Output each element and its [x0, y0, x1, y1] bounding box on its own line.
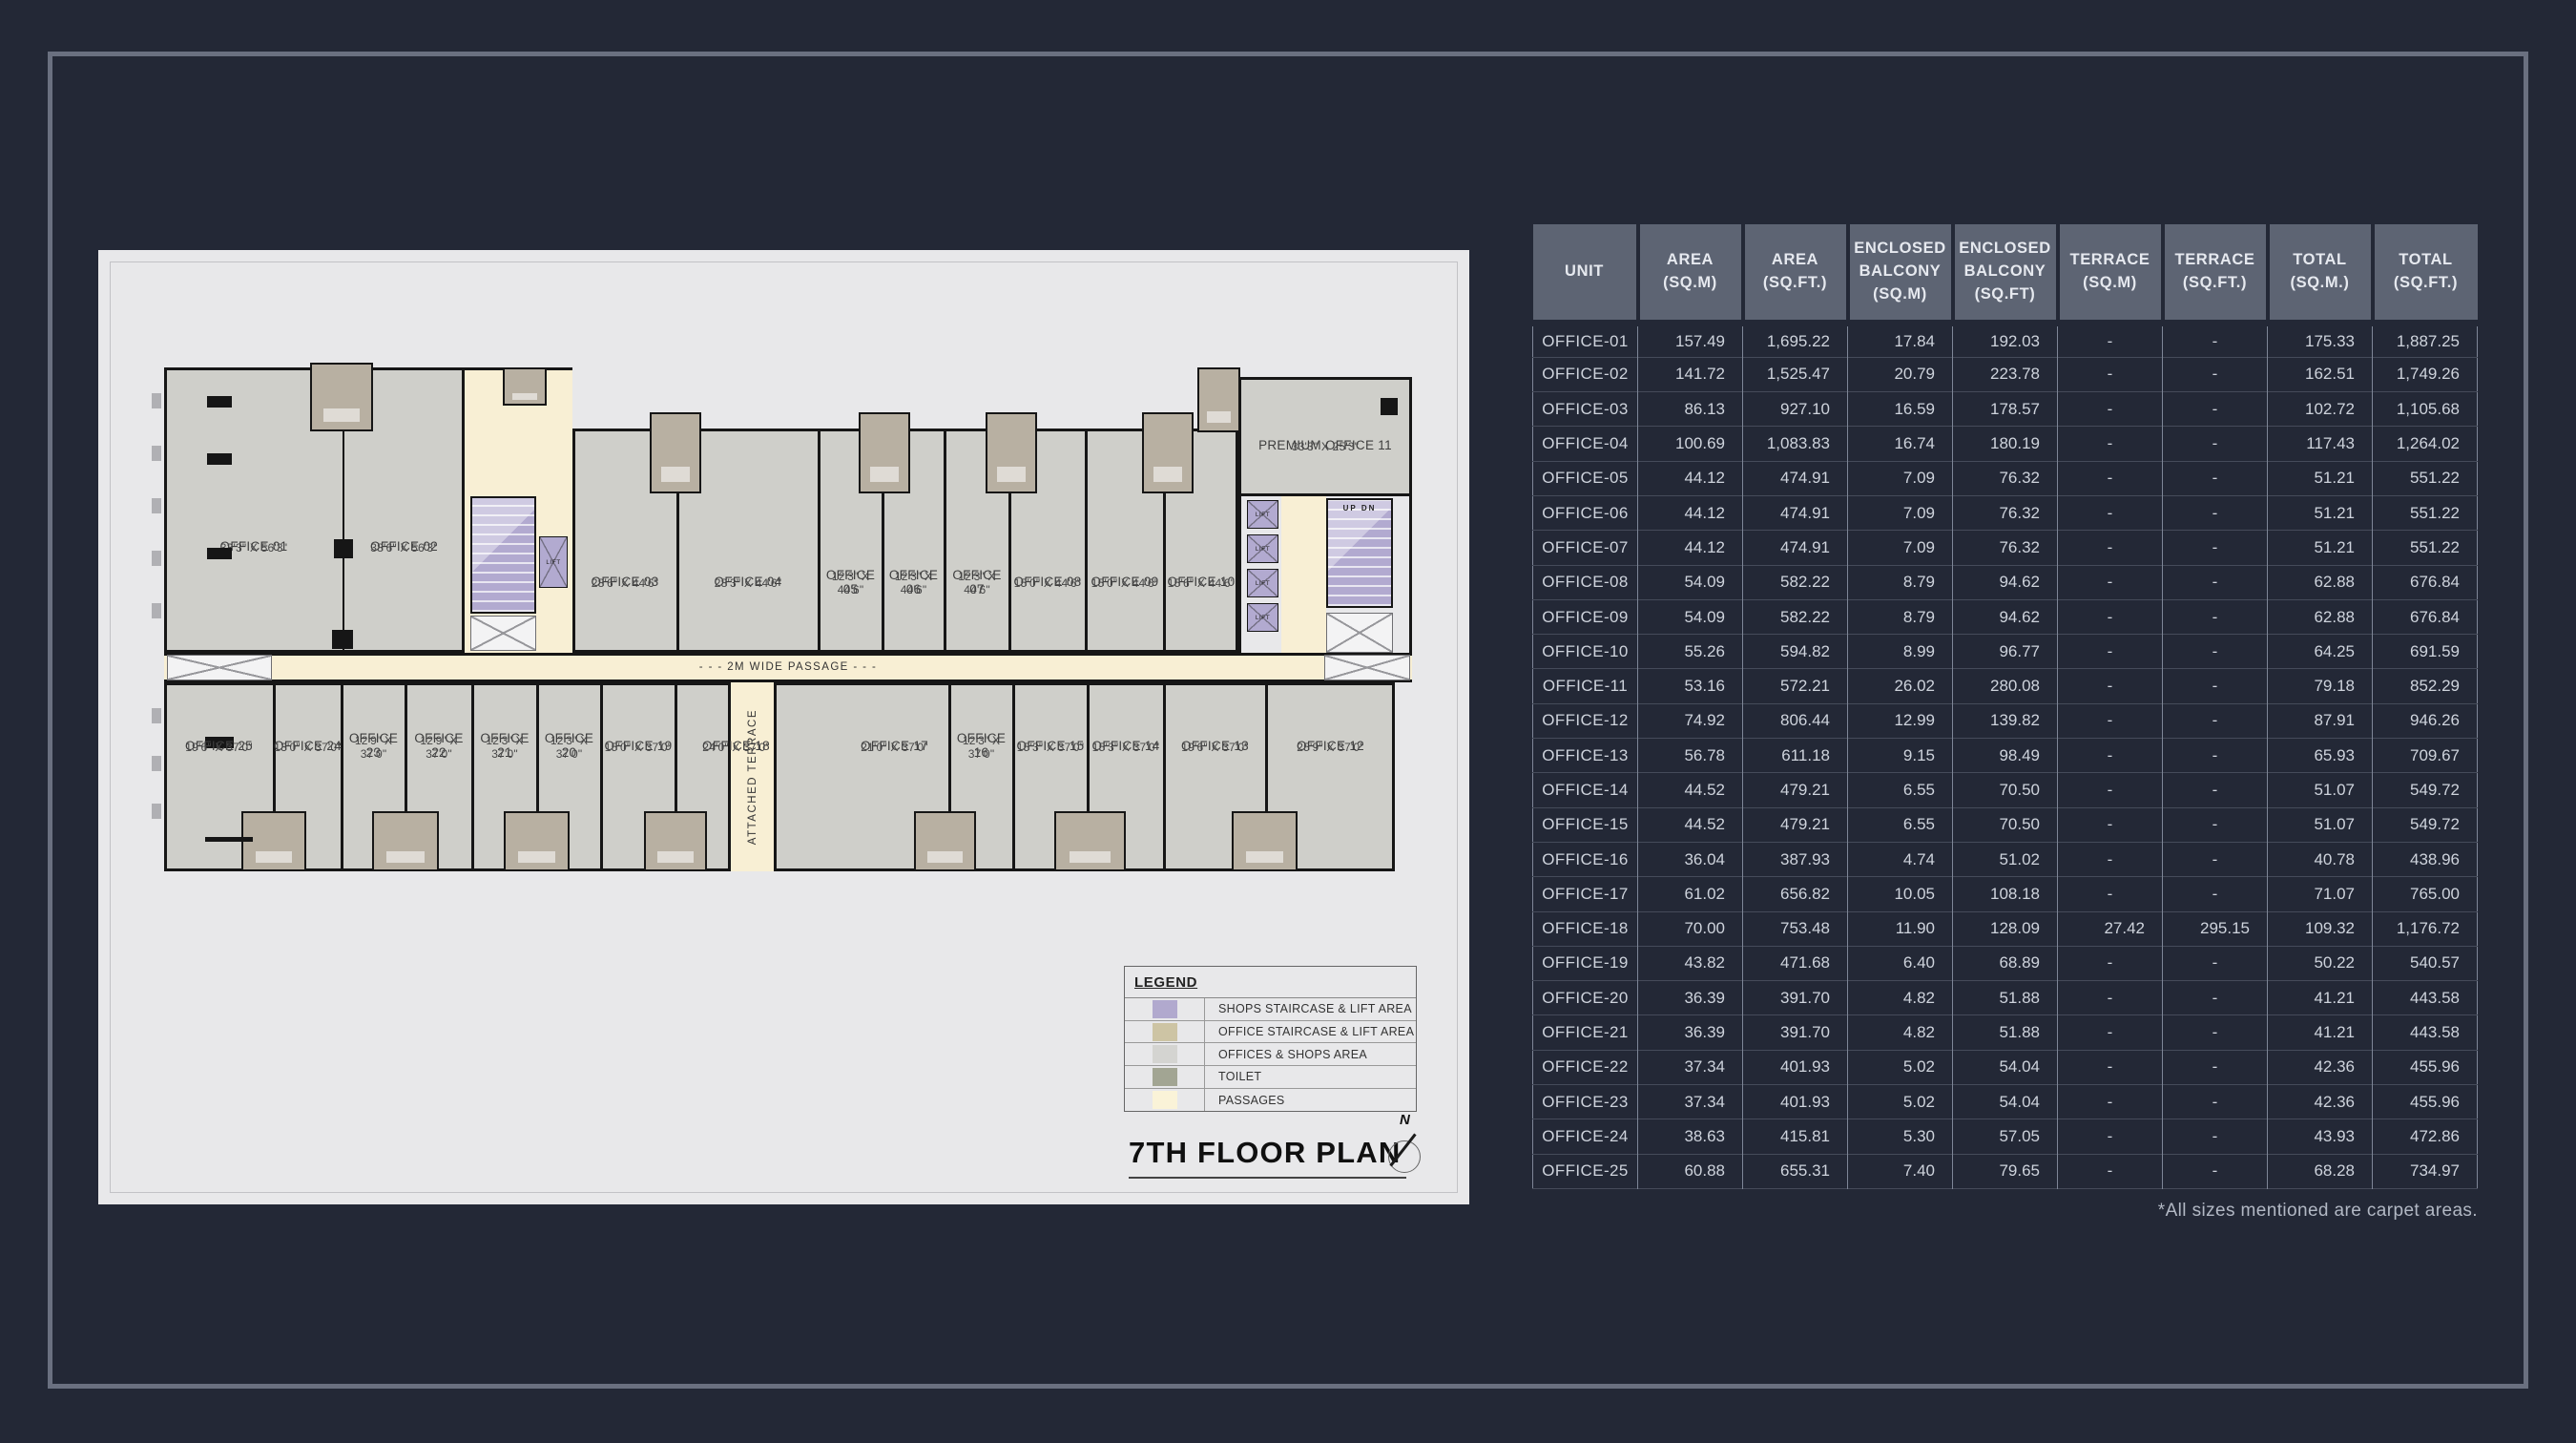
value-cell: -	[2163, 565, 2268, 599]
value-cell: 753.48	[1743, 911, 1848, 946]
table-header: UNITAREA(SQ.M)AREA(SQ.FT.)ENCLOSEDBALCON…	[1533, 224, 2478, 323]
value-cell: -	[2058, 323, 2163, 357]
office-dims: 12'3" X 37'0"	[472, 734, 537, 761]
value-cell: 16.74	[1848, 427, 1953, 461]
plan-office-18: OFFICE 1824'0" X 37'0"	[675, 682, 797, 871]
plan-balcony-tick	[152, 804, 161, 819]
office-dims: 12'3" X 44'6"	[819, 570, 883, 596]
stair-dn-label: DN	[1361, 504, 1377, 512]
value-cell: -	[2163, 531, 2268, 565]
value-cell: 11.90	[1848, 911, 1953, 946]
office-dims: 15'0" X 44'6"	[1091, 576, 1158, 590]
value-cell: -	[2058, 1015, 2163, 1050]
legend-label: PASSAGES	[1205, 1089, 1416, 1112]
value-cell: 74.92	[1638, 703, 1743, 738]
table-row: OFFICE-1636.04387.934.7451.02--40.78438.…	[1533, 842, 2478, 876]
value-cell: 117.43	[2268, 427, 2373, 461]
value-cell: 37.34	[1638, 1085, 1743, 1119]
value-cell: 443.58	[2373, 1015, 2478, 1050]
plan-office-14: OFFICE 1415'3" X 37'0"	[1088, 682, 1164, 871]
legend-swatch	[1153, 1023, 1177, 1041]
legend-swatch	[1153, 1045, 1177, 1063]
unit-cell: OFFICE-04	[1533, 427, 1638, 461]
table-row: OFFICE-1153.16572.2126.02280.08--79.1885…	[1533, 669, 2478, 703]
table-row: OFFICE-2438.63415.815.3057.05--43.93472.…	[1533, 1119, 2478, 1154]
plan-office-21: OFFICE 2112'3" X 37'0"	[472, 682, 537, 871]
legend-swatch	[1153, 1068, 1177, 1086]
plan-toilet	[310, 363, 373, 431]
value-cell: 44.12	[1638, 495, 1743, 530]
unit-cell: OFFICE-20	[1533, 981, 1638, 1015]
value-cell: 55.26	[1638, 635, 1743, 669]
value-cell: 5.02	[1848, 1050, 1953, 1084]
office-dims: 15'0" X 37'0"	[605, 741, 672, 754]
value-cell: 42.36	[2268, 1085, 2373, 1119]
value-cell: -	[2163, 635, 2268, 669]
value-cell: -	[2163, 427, 2268, 461]
plan-office-10: OFFICE 1015'6" X 44'6"	[1164, 429, 1238, 653]
unit-cell: OFFICE-03	[1533, 392, 1638, 427]
value-cell: 51.21	[2268, 531, 2373, 565]
legend-label: SHOPS STAIRCASE & LIFT AREA	[1205, 998, 1416, 1020]
value-cell: 676.84	[2373, 565, 2478, 599]
value-cell: -	[2058, 565, 2163, 599]
value-cell: 86.13	[1638, 392, 1743, 427]
office-dims: 15'6" X 44'6"	[1168, 576, 1235, 590]
value-cell: 54.04	[1953, 1050, 2058, 1084]
value-cell: 734.97	[2373, 1154, 2478, 1188]
unit-cell: OFFICE-05	[1533, 461, 1638, 495]
office-dims: 19'6" X 37'0"	[1181, 741, 1248, 754]
table-row: OFFICE-1274.92806.4412.99139.82--87.9194…	[1533, 703, 2478, 738]
value-cell: 549.72	[2373, 773, 2478, 807]
value-cell: 53.16	[1638, 669, 1743, 703]
value-cell: 4.82	[1848, 1015, 1953, 1050]
office-dims: 24'0" X 37'0"	[702, 741, 769, 754]
value-cell: 51.07	[2268, 773, 2373, 807]
plan-office-16: OFFICE 1612'3" X 37'0"	[949, 682, 1013, 871]
value-cell: 8.79	[1848, 599, 1953, 634]
value-cell: 7.09	[1848, 495, 1953, 530]
column-header-5: TERRACE(SQ.M)	[2058, 224, 2163, 323]
legend-item: SHOPS STAIRCASE & LIFT AREA	[1125, 998, 1416, 1021]
value-cell: 70.50	[1953, 773, 2058, 807]
unit-cell: OFFICE-12	[1533, 703, 1638, 738]
value-cell: 141.72	[1638, 357, 1743, 391]
table-row: OFFICE-0744.12474.917.0976.32--51.21551.…	[1533, 531, 2478, 565]
value-cell: 44.52	[1638, 807, 1743, 842]
value-cell: -	[2058, 946, 2163, 980]
table-row: OFFICE-1544.52479.216.5570.50--51.07549.…	[1533, 807, 2478, 842]
unit-cell: OFFICE-10	[1533, 635, 1638, 669]
plan-office-19: OFFICE 1915'0" X 37'0"	[601, 682, 675, 871]
value-cell: -	[2058, 703, 2163, 738]
office-dims: 12'3" X 44'6"	[883, 570, 945, 596]
column-header-3: ENCLOSEDBALCONY(SQ.M)	[1848, 224, 1953, 323]
column-header-6: TERRACE(SQ.FT.)	[2163, 224, 2268, 323]
value-cell: 76.32	[1953, 531, 2058, 565]
value-cell: -	[2163, 323, 2268, 357]
value-cell: -	[2163, 1050, 2268, 1084]
value-cell: 1,083.83	[1743, 427, 1848, 461]
value-cell: 479.21	[1743, 773, 1848, 807]
value-cell: 192.03	[1953, 323, 2058, 357]
value-cell: -	[2163, 599, 2268, 634]
value-cell: 109.32	[2268, 911, 2373, 946]
plan-hatch-box	[167, 655, 272, 680]
value-cell: -	[2058, 877, 2163, 911]
value-cell: 43.82	[1638, 946, 1743, 980]
plan-office-12: OFFICE 1225'9" X 37'0"	[1266, 682, 1395, 871]
value-cell: -	[2163, 669, 2268, 703]
value-cell: 10.05	[1848, 877, 1953, 911]
value-cell: -	[2058, 635, 2163, 669]
value-cell: 455.96	[2373, 1085, 2478, 1119]
plan-balcony-tick	[152, 498, 161, 513]
office-dims: 28'3" X 44'6"	[715, 576, 781, 590]
table-row: OFFICE-2560.88655.317.4079.65--68.28734.…	[1533, 1154, 2478, 1188]
table-row: OFFICE-04100.691,083.8316.74180.19--117.…	[1533, 427, 2478, 461]
value-cell: 175.33	[2268, 323, 2373, 357]
unit-cell: OFFICE-11	[1533, 669, 1638, 703]
value-cell: 7.09	[1848, 531, 1953, 565]
value-cell: -	[2058, 739, 2163, 773]
legend-label: OFFICE STAIRCASE & LIFT AREA	[1205, 1021, 1416, 1043]
plan-office-08: OFFICE 0815'0" X 44'6"	[1009, 429, 1086, 653]
value-cell: 611.18	[1743, 739, 1848, 773]
plan-lift-cell: LIFT	[1247, 534, 1278, 563]
value-cell: 36.04	[1638, 842, 1743, 876]
value-cell: 1,264.02	[2373, 427, 2478, 461]
value-cell: 68.89	[1953, 946, 2058, 980]
plan-office-03: OFFICE 0328'6" X 44'6"	[572, 429, 677, 653]
value-cell: -	[2058, 427, 2163, 461]
value-cell: -	[2163, 495, 2268, 530]
office-dims: 25'9" X 37'0"	[1297, 741, 1363, 754]
plan-wall	[1238, 496, 1241, 653]
plan-office-04: OFFICE 0428'3" X 44'6"	[677, 429, 819, 653]
value-cell: -	[2163, 842, 2268, 876]
value-cell: 54.09	[1638, 599, 1743, 634]
floor-plan-panel: OFFICE 01 33'3" X 56'3" OFFICE 02 38'6" …	[98, 250, 1469, 1204]
unit-cell: OFFICE-19	[1533, 946, 1638, 980]
plan-hatch-box	[1326, 613, 1393, 653]
value-cell: 157.49	[1638, 323, 1743, 357]
value-cell: 479.21	[1743, 807, 1848, 842]
value-cell: 551.22	[2373, 531, 2478, 565]
plan-office-23: OFFICE 2312'9" X 37'0"	[342, 682, 405, 871]
value-cell: 41.21	[2268, 1015, 2373, 1050]
office-dims: 12'9" X 37'0"	[342, 734, 405, 761]
value-cell: 295.15	[2163, 911, 2268, 946]
value-cell: 20.79	[1848, 357, 1953, 391]
value-cell: 551.22	[2373, 495, 2478, 530]
plan-office-17: OFFICE 1721'0" X 37'0"	[840, 682, 949, 871]
value-cell: 108.18	[1953, 877, 2058, 911]
plan-lift-cell: LIFT	[1247, 569, 1278, 597]
unit-cell: OFFICE-21	[1533, 1015, 1638, 1050]
value-cell: -	[2163, 1119, 2268, 1154]
value-cell: 37.34	[1638, 1050, 1743, 1084]
value-cell: 96.77	[1953, 635, 2058, 669]
legend-item: TOILET	[1125, 1066, 1416, 1089]
column-header-0: UNIT	[1533, 224, 1638, 323]
plan-balcony-tick	[152, 446, 161, 461]
value-cell: 64.25	[2268, 635, 2373, 669]
plan-column-mark	[207, 453, 232, 465]
value-cell: 391.70	[1743, 981, 1848, 1015]
value-cell: 4.74	[1848, 842, 1953, 876]
value-cell: 38.63	[1638, 1119, 1743, 1154]
value-cell: 26.02	[1848, 669, 1953, 703]
office-dims: 12'3" X 44'6"	[945, 570, 1009, 596]
value-cell: 12.99	[1848, 703, 1953, 738]
legend-swatch-cell	[1125, 1066, 1205, 1088]
plan-balcony-tick	[152, 551, 161, 566]
unit-cell: OFFICE-07	[1533, 531, 1638, 565]
value-cell: 65.93	[2268, 739, 2373, 773]
value-cell: 62.88	[2268, 565, 2373, 599]
legend-item: PASSAGES	[1125, 1089, 1416, 1112]
table-row: OFFICE-0854.09582.228.7994.62--62.88676.…	[1533, 565, 2478, 599]
value-cell: 391.70	[1743, 1015, 1848, 1050]
value-cell: 946.26	[2373, 703, 2478, 738]
column-header-8: TOTAL(SQ.FT.)	[2373, 224, 2478, 323]
value-cell: 455.96	[2373, 1050, 2478, 1084]
unit-cell: OFFICE-18	[1533, 911, 1638, 946]
value-cell: 70.00	[1638, 911, 1743, 946]
unit-cell: OFFICE-22	[1533, 1050, 1638, 1084]
office-dims: 15'3" X 37'0"	[1017, 741, 1084, 754]
office-dims: 28'6" X 44'6"	[592, 576, 658, 590]
value-cell: 94.62	[1953, 565, 2058, 599]
plan-lift-cell: LIFT	[1247, 500, 1278, 529]
plan-office-24: OFFICE 2413'0" X 37'0"	[274, 682, 342, 871]
value-cell: 51.07	[2268, 807, 2373, 842]
value-cell: 691.59	[2373, 635, 2478, 669]
stair-up-label: UP	[1343, 504, 1358, 512]
plan-column-mark	[207, 548, 232, 559]
value-cell: 71.07	[2268, 877, 2373, 911]
value-cell: 17.84	[1848, 323, 1953, 357]
value-cell: 540.57	[2373, 946, 2478, 980]
plan-toilet	[1197, 367, 1240, 432]
legend-swatch-cell	[1125, 1043, 1205, 1065]
table-row: OFFICE-2237.34401.935.0254.04--42.36455.…	[1533, 1050, 2478, 1084]
unit-cell: OFFICE-24	[1533, 1119, 1638, 1154]
table-row: OFFICE-0954.09582.228.7994.62--62.88676.…	[1533, 599, 2478, 634]
value-cell: 1,176.72	[2373, 911, 2478, 946]
value-cell: 62.88	[2268, 599, 2373, 634]
table-row: OFFICE-1870.00753.4811.90128.0927.42295.…	[1533, 911, 2478, 946]
column-header-2: AREA(SQ.FT.)	[1743, 224, 1848, 323]
unit-cell: OFFICE-02	[1533, 357, 1638, 391]
value-cell: 1,887.25	[2373, 323, 2478, 357]
value-cell: 40.78	[2268, 842, 2373, 876]
table-body: OFFICE-01157.491,695.2217.84192.03--175.…	[1533, 323, 2478, 1188]
value-cell: 582.22	[1743, 599, 1848, 634]
plan-balcony-tick	[152, 708, 161, 723]
value-cell: 474.91	[1743, 531, 1848, 565]
plan-column-mark	[207, 396, 232, 408]
value-cell: 765.00	[2373, 877, 2478, 911]
table-row: OFFICE-1761.02656.8210.05108.18--71.0776…	[1533, 877, 2478, 911]
value-cell: 1,105.68	[2373, 392, 2478, 427]
office-dims: 15'0" X 44'6"	[1014, 576, 1081, 590]
value-cell: 5.30	[1848, 1119, 1953, 1154]
table-row: OFFICE-01157.491,695.2217.84192.03--175.…	[1533, 323, 2478, 357]
table-row: OFFICE-0644.12474.917.0976.32--51.21551.…	[1533, 495, 2478, 530]
value-cell: 94.62	[1953, 599, 2058, 634]
unit-cell: OFFICE-25	[1533, 1154, 1638, 1188]
legend-swatch	[1153, 1000, 1177, 1018]
value-cell: 51.21	[2268, 495, 2373, 530]
table-row: OFFICE-1943.82471.686.4068.89--50.22540.…	[1533, 946, 2478, 980]
value-cell: 8.99	[1848, 635, 1953, 669]
value-cell: -	[2058, 1050, 2163, 1084]
value-cell: -	[2058, 357, 2163, 391]
value-cell: -	[2163, 357, 2268, 391]
value-cell: 54.04	[1953, 1085, 2058, 1119]
plan-wall	[1409, 496, 1412, 653]
plan-hatch-box	[470, 616, 536, 651]
legend-swatch-cell	[1125, 1021, 1205, 1043]
value-cell: 76.32	[1953, 461, 2058, 495]
plan-column-mark	[332, 630, 353, 649]
value-cell: -	[2058, 531, 2163, 565]
value-cell: 79.65	[1953, 1154, 2058, 1188]
value-cell: -	[2163, 946, 2268, 980]
plan-title: 7TH FLOOR PLAN	[1129, 1136, 1406, 1179]
legend-swatch-cell	[1125, 998, 1205, 1020]
plan-office-25: OFFICE 2519'6" X 37'0"	[164, 682, 274, 871]
table-header-row: UNITAREA(SQ.M)AREA(SQ.FT.)ENCLOSEDBALCON…	[1533, 224, 2478, 323]
value-cell: 6.40	[1848, 946, 1953, 980]
legend-items: SHOPS STAIRCASE & LIFT AREAOFFICE STAIRC…	[1125, 998, 1416, 1111]
office-dims: 15'3" X 37'0"	[1092, 741, 1159, 754]
table-row: OFFICE-1356.78611.189.1598.49--65.93709.…	[1533, 739, 2478, 773]
unit-cell: OFFICE-08	[1533, 565, 1638, 599]
value-cell: 5.02	[1848, 1085, 1953, 1119]
value-cell: 471.68	[1743, 946, 1848, 980]
value-cell: 852.29	[2373, 669, 2478, 703]
value-cell: 41.21	[2268, 981, 2373, 1015]
value-cell: 57.05	[1953, 1119, 2058, 1154]
plan-hatch-box	[1324, 655, 1410, 680]
unit-cell: OFFICE-09	[1533, 599, 1638, 634]
value-cell: 42.36	[2268, 1050, 2373, 1084]
table-row: OFFICE-0544.12474.917.0976.32--51.21551.…	[1533, 461, 2478, 495]
plan-balcony-tick	[152, 393, 161, 408]
plan-office-09: OFFICE 0915'0" X 44'6"	[1086, 429, 1164, 653]
shops-staircase-left	[470, 496, 536, 614]
value-cell: 178.57	[1953, 392, 2058, 427]
legend-label: OFFICES & SHOPS AREA	[1205, 1043, 1416, 1065]
value-cell: 472.86	[2373, 1119, 2478, 1154]
value-cell: 4.82	[1848, 981, 1953, 1015]
value-cell: -	[2163, 773, 2268, 807]
table-row: OFFICE-02141.721,525.4720.79223.78--162.…	[1533, 357, 2478, 391]
value-cell: 36.39	[1638, 1015, 1743, 1050]
legend-item: OFFICE STAIRCASE & LIFT AREA	[1125, 1021, 1416, 1044]
office-dims: 12'9" X 37'0"	[405, 734, 472, 761]
value-cell: 709.67	[2373, 739, 2478, 773]
value-cell: 44.12	[1638, 461, 1743, 495]
plan-lift-cell: LIFT	[1247, 603, 1278, 632]
plan-balcony-tick	[152, 756, 161, 771]
value-cell: -	[2163, 392, 2268, 427]
table-row: OFFICE-2036.39391.704.8251.88--41.21443.…	[1533, 981, 2478, 1015]
plan-toilet	[503, 367, 547, 406]
value-cell: 280.08	[1953, 669, 2058, 703]
shops-lift-left: LIFT	[539, 536, 568, 588]
value-cell: 1,695.22	[1743, 323, 1848, 357]
value-cell: -	[2058, 842, 2163, 876]
column-header-4: ENCLOSEDBALCONY(SQ.FT)	[1953, 224, 2058, 323]
value-cell: -	[2163, 1154, 2268, 1188]
plan-office-22: OFFICE 2212'9" X 37'0"	[405, 682, 472, 871]
table-row: OFFICE-1444.52479.216.5570.50--51.07549.…	[1533, 773, 2478, 807]
value-cell: 387.93	[1743, 842, 1848, 876]
table-row: OFFICE-0386.13927.1016.59178.57--102.721…	[1533, 392, 2478, 427]
value-cell: -	[2058, 392, 2163, 427]
office-dims: 12'3" X 37'0"	[949, 734, 1013, 761]
value-cell: 98.49	[1953, 739, 2058, 773]
plan-balcony-tick	[152, 603, 161, 618]
value-cell: 50.22	[2268, 946, 2373, 980]
value-cell: -	[2163, 981, 2268, 1015]
plan-office-07: OFFICE 0712'3" X 44'6"	[945, 429, 1009, 653]
value-cell: 551.22	[2373, 461, 2478, 495]
value-cell: 1,525.47	[1743, 357, 1848, 391]
value-cell: -	[2163, 1085, 2268, 1119]
value-cell: 594.82	[1743, 635, 1848, 669]
value-cell: 87.91	[2268, 703, 2373, 738]
value-cell: 27.42	[2058, 911, 2163, 946]
table-row: OFFICE-2136.39391.704.8251.88--41.21443.…	[1533, 1015, 2478, 1050]
value-cell: 582.22	[1743, 565, 1848, 599]
office-dims: 19'6" X 37'0"	[185, 741, 252, 754]
area-statement-table: UNITAREA(SQ.M)AREA(SQ.FT.)ENCLOSEDBALCON…	[1532, 224, 2478, 1189]
office-dims: 38'6" X 56'3"	[370, 541, 437, 554]
value-cell: 8.79	[1848, 565, 1953, 599]
value-cell: 180.19	[1953, 427, 2058, 461]
plan-column-mark	[334, 539, 353, 558]
value-cell: 44.52	[1638, 773, 1743, 807]
value-cell: -	[2163, 461, 2268, 495]
value-cell: 51.21	[2268, 461, 2373, 495]
legend-item: OFFICES & SHOPS AREA	[1125, 1043, 1416, 1066]
column-header-1: AREA(SQ.M)	[1638, 224, 1743, 323]
value-cell: 656.82	[1743, 877, 1848, 911]
legend-swatch	[1153, 1091, 1177, 1109]
value-cell: 806.44	[1743, 703, 1848, 738]
unit-cell: OFFICE-17	[1533, 877, 1638, 911]
area-statement-table-wrap: UNITAREA(SQ.M)AREA(SQ.FT.)ENCLOSEDBALCON…	[1532, 224, 2478, 1189]
value-cell: 56.78	[1638, 739, 1743, 773]
value-cell: 128.09	[1953, 911, 2058, 946]
value-cell: 60.88	[1638, 1154, 1743, 1188]
value-cell: 7.40	[1848, 1154, 1953, 1188]
value-cell: 9.15	[1848, 739, 1953, 773]
value-cell: 572.21	[1743, 669, 1848, 703]
value-cell: 68.28	[2268, 1154, 2373, 1188]
value-cell: 44.12	[1638, 531, 1743, 565]
value-cell: -	[2058, 1154, 2163, 1188]
office-dims: 21'0" X 37'0"	[861, 741, 927, 754]
unit-cell: OFFICE-06	[1533, 495, 1638, 530]
value-cell: -	[2058, 1085, 2163, 1119]
